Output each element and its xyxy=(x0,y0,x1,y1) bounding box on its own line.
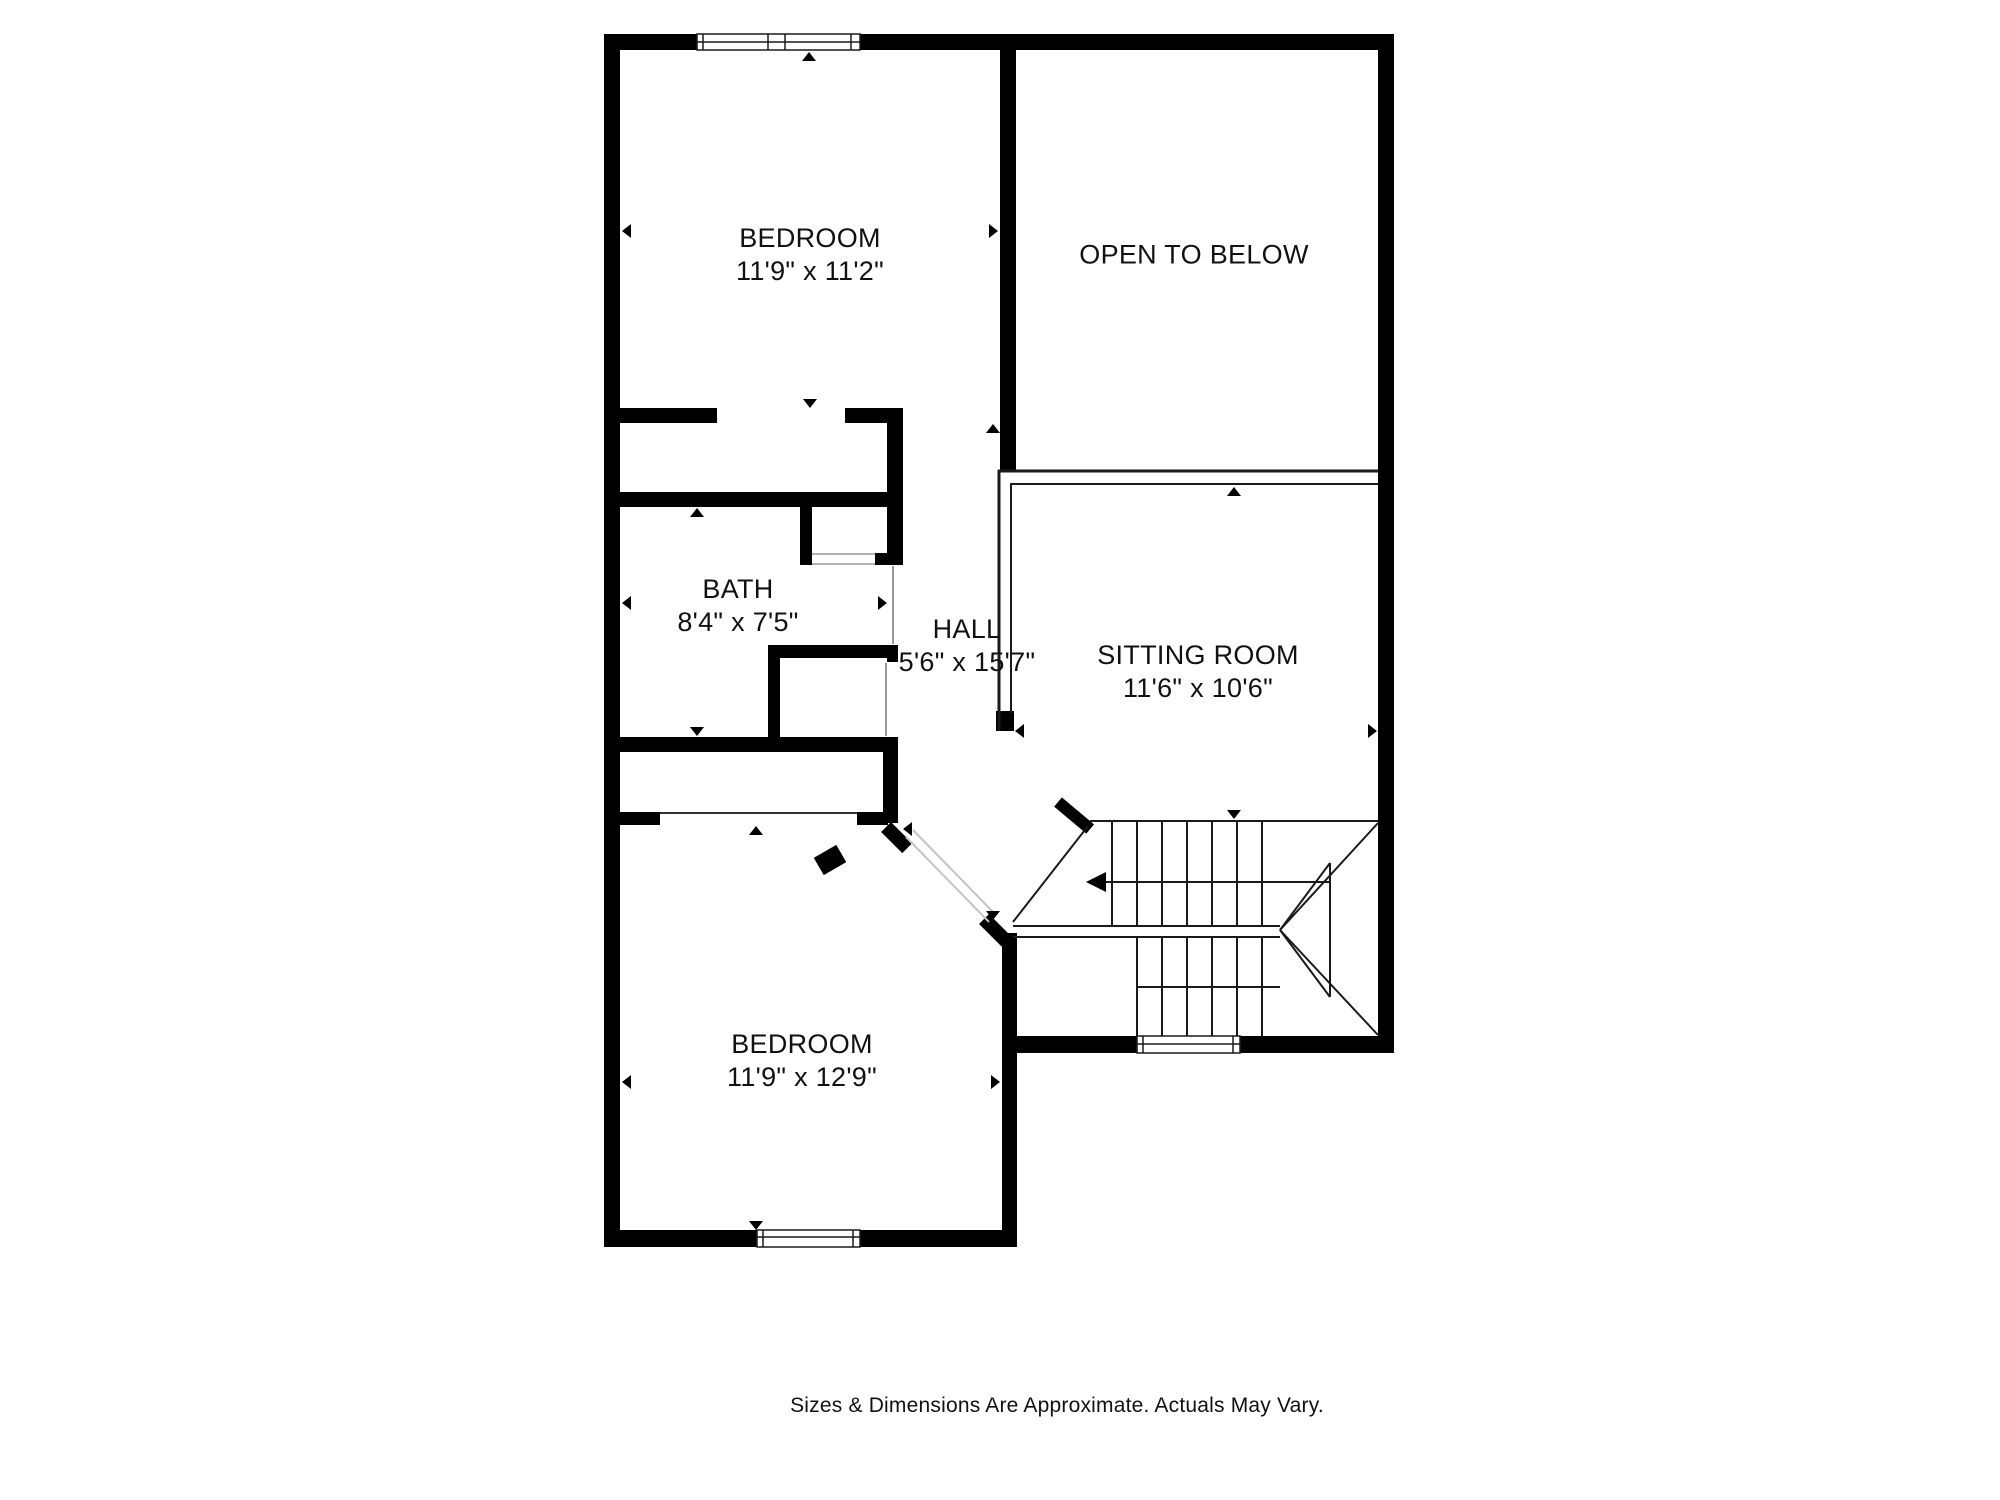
marker-up-icon xyxy=(1227,487,1241,496)
room-label-sitting-room: SITTING ROOM 11'6" x 10'6" xyxy=(1097,639,1299,705)
wall-bedroom-openbelow-divider xyxy=(1000,50,1016,470)
room-dims: 11'9" x 11'2" xyxy=(736,255,884,288)
room-name: HALL xyxy=(899,613,1036,646)
wall-top-right-of-window xyxy=(860,34,1394,50)
room-label-bath: BATH 8'4" x 7'5" xyxy=(677,573,798,639)
window-bottom-bedroom xyxy=(757,1230,860,1247)
wall-bath-closet-left xyxy=(800,507,812,565)
marker-right-icon xyxy=(989,224,998,238)
floor-plan: BEDROOM 11'9" x 11'2" OPEN TO BELOW BATH… xyxy=(0,0,2000,1500)
room-name: BEDROOM xyxy=(727,1028,877,1061)
marker-up-icon xyxy=(690,508,704,517)
wall-stairs-bottom-right xyxy=(1240,1036,1394,1053)
marker-down-icon xyxy=(803,399,817,408)
room-label-bedroom-top: BEDROOM 11'9" x 11'2" xyxy=(736,222,884,288)
wall-bedroom-bottom-top-left xyxy=(620,812,660,825)
marker-right-icon xyxy=(1368,724,1377,738)
marker-up-icon xyxy=(749,826,763,835)
door-leaf-icon xyxy=(814,845,847,875)
marker-up-icon xyxy=(802,52,816,61)
room-name: BATH xyxy=(677,573,798,606)
wall-left-outer xyxy=(604,34,620,1247)
angled-entry-opening-line-outer xyxy=(906,837,989,922)
wall-bedroom-bottom-right xyxy=(1002,933,1017,1247)
wall-bottom-bedroom-left xyxy=(604,1230,757,1247)
stair-direction-arrow-icon xyxy=(1086,872,1106,892)
room-dims: 5'6" x 15'7" xyxy=(899,646,1036,679)
marker-down-icon xyxy=(749,1221,763,1230)
room-dims: 8'4" x 7'5" xyxy=(677,606,798,639)
room-label-bedroom-bottom: BEDROOM 11'9" x 12'9" xyxy=(727,1028,877,1094)
room-name: OPEN TO BELOW xyxy=(1079,239,1308,272)
room-label-hall: HALL 5'6" x 15'7" xyxy=(899,613,1036,679)
stair-winder-fan xyxy=(1280,823,1378,1035)
marker-right-icon xyxy=(878,596,887,610)
room-label-open-to-below: OPEN TO BELOW xyxy=(1079,239,1308,272)
room-dims: 11'6" x 10'6" xyxy=(1097,672,1299,705)
marker-down-icon xyxy=(690,727,704,736)
wall-nook-cap xyxy=(887,645,898,662)
marker-left-icon xyxy=(622,224,631,238)
window-stairs xyxy=(1137,1036,1240,1053)
marker-up-icon xyxy=(986,424,1000,433)
room-dims: 11'9" x 12'9" xyxy=(727,1061,877,1094)
wall-bath-top xyxy=(620,492,903,507)
wall-right-outer xyxy=(1378,34,1394,1053)
wall-hall-west xyxy=(883,737,898,823)
marker-down-icon xyxy=(1227,810,1241,819)
wall-bottom-bedroom-right xyxy=(860,1230,1017,1247)
angled-entry-opening-line-inner xyxy=(913,830,996,915)
wall-bath-closet-cap xyxy=(875,553,903,565)
wall-bedroom-top-bottom-left xyxy=(620,408,717,423)
wall-bath-bottom xyxy=(620,737,898,752)
marker-left-icon xyxy=(1015,724,1024,738)
disclaimer-text: Sizes & Dimensions Are Approximate. Actu… xyxy=(790,1394,1324,1418)
marker-left-icon xyxy=(622,596,631,610)
floor-plan-drawing xyxy=(0,0,2000,1500)
marker-right-icon xyxy=(991,1075,1000,1089)
wall-nook-top xyxy=(780,645,887,658)
wall-nook-left xyxy=(768,645,780,752)
marker-left-icon xyxy=(903,822,912,836)
room-name: BEDROOM xyxy=(736,222,884,255)
stair-risers-upper-flight xyxy=(1112,822,1262,925)
wall-stairs-bottom-left xyxy=(1002,1036,1137,1053)
marker-left-icon xyxy=(622,1075,631,1089)
wall-bedroom-bottom-top-right xyxy=(857,812,888,825)
stair-railing-diagonal xyxy=(1013,826,1088,922)
room-name: SITTING ROOM xyxy=(1097,639,1299,672)
stair-railing-newel xyxy=(1054,797,1094,833)
window-top-bedroom xyxy=(697,34,860,50)
